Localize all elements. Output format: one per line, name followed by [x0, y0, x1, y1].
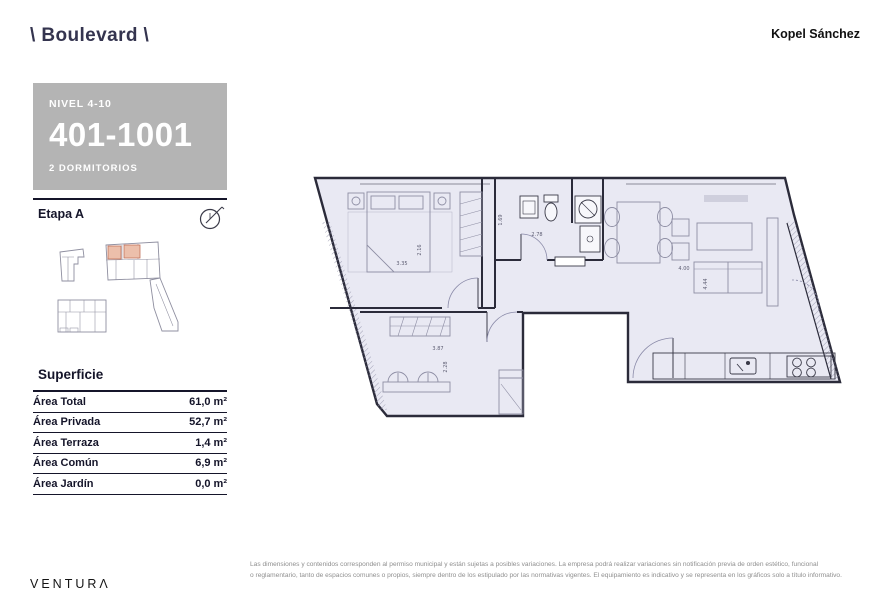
ventura-logo: VENTURΛ	[30, 577, 111, 591]
dim-living-depth: 4.44	[703, 278, 709, 289]
key-plan-thumbnails	[50, 238, 210, 343]
divider-line	[33, 198, 227, 200]
disclaimer-text: Las dimensiones y contenidos corresponde…	[250, 560, 865, 581]
dim-bath-depth: 1.69	[498, 214, 504, 225]
area-value: 52,7 m²	[189, 416, 227, 428]
dim-bed1-width: 3.35	[396, 261, 407, 267]
toilet-tank-icon	[544, 195, 558, 202]
highlighted-unit	[108, 246, 121, 259]
table-row: Área Total 61,0 m²	[33, 390, 227, 412]
dim-bed2-depth: 2.28	[443, 361, 449, 372]
threshold	[555, 257, 585, 266]
disclaimer-line-2: o reglamentario, tanto de espacios comun…	[250, 571, 865, 582]
unit-type: 2 DORMITORIOS	[49, 163, 227, 174]
area-value: 6,9 m²	[195, 457, 227, 469]
stage-label: Etapa A	[38, 207, 84, 221]
table-row: Área Terraza 1,4 m²	[33, 432, 227, 453]
disclaimer-line-1: Las dimensiones y contenidos corresponde…	[250, 560, 865, 571]
dim-bed2-width: 3.87	[432, 346, 443, 352]
unit-level: NIVEL 4-10	[49, 98, 227, 110]
tv-bench-icon	[704, 195, 748, 202]
unit-card: NIVEL 4-10 401-1001 2 DORMITORIOS	[33, 83, 227, 190]
table-row: Área Común 6,9 m²	[33, 453, 227, 474]
unit-number: 401-1001	[49, 116, 227, 154]
developer-brand: Kopel Sánchez	[771, 27, 860, 41]
boulevard-logo: \ Boulevard \	[30, 25, 149, 47]
dim-bath-width: 2.78	[531, 232, 542, 238]
area-value: 1,4 m²	[195, 437, 227, 449]
area-value: 0,0 m²	[195, 478, 227, 490]
table-row: Área Jardín 0,0 m²	[33, 473, 227, 494]
floor-plan: 3.35 2.16 1.69 2.78 4.00 4.44 3.87 2.28	[290, 160, 870, 460]
dim-living-width: 4.00	[678, 266, 689, 272]
area-label: Área Jardín	[33, 478, 94, 490]
north-compass-icon	[197, 202, 229, 234]
area-label: Área Privada	[33, 416, 100, 428]
thumbnail-plate-c	[58, 300, 106, 332]
surface-title: Superficie	[38, 367, 103, 382]
highlighted-unit	[124, 245, 140, 258]
dim-bed1-depth: 2.16	[417, 244, 423, 255]
table-row: Área Privada 52,7 m²	[33, 412, 227, 433]
thumbnail-wing	[150, 278, 178, 331]
area-label: Área Terraza	[33, 437, 99, 449]
area-label: Área Común	[33, 457, 98, 469]
area-label: Área Total	[33, 396, 86, 408]
thumbnail-plate-a	[60, 249, 84, 281]
area-value: 61,0 m²	[189, 396, 227, 408]
toilet-icon	[545, 203, 557, 221]
surface-table: Área Total 61,0 m² Área Privada 52,7 m² …	[33, 390, 227, 495]
floorplan-sheet: \ Boulevard \ Kopel Sánchez NIVEL 4-10 4…	[0, 0, 874, 605]
